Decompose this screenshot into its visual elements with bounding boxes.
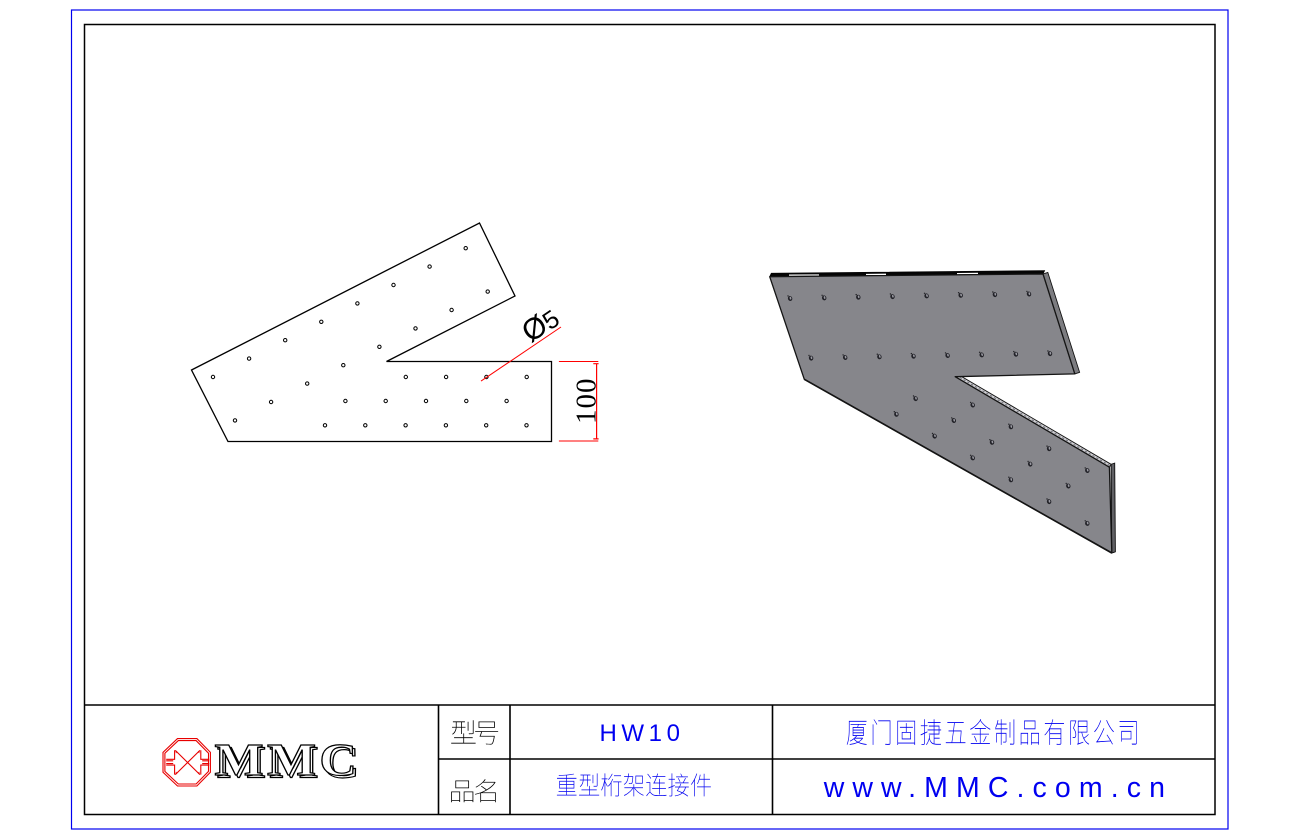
svg-text:100: 100 xyxy=(571,378,603,425)
svg-text:MMC: MMC xyxy=(215,734,361,786)
svg-text:www.MMC.com.cn: www.MMC.com.cn xyxy=(823,772,1173,804)
svg-text:HW10: HW10 xyxy=(600,720,685,747)
